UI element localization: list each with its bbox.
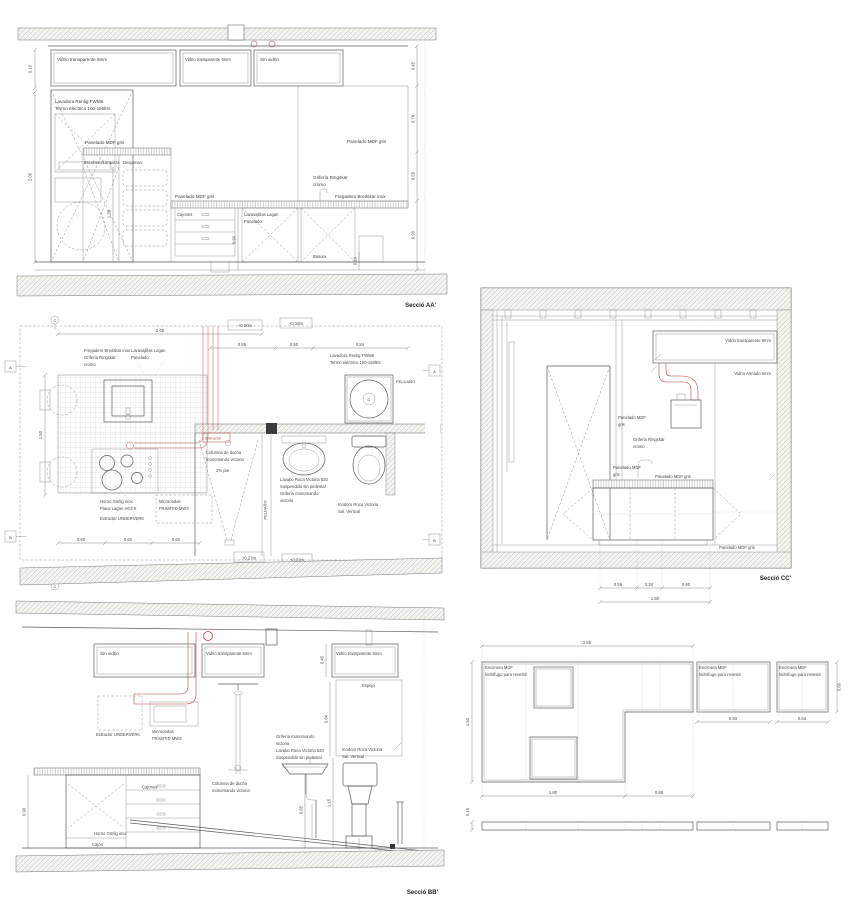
plan-bathroom: Lavabo Roca Victoria 520 Suspendido sin …: [280, 433, 395, 564]
plan-kitchen-counter: [40, 375, 207, 493]
cc-griferia-label-2: cromo: [633, 444, 645, 449]
cc-glass-panel: Vidrio transparente 6mm Vidrio Armado 6m…: [651, 331, 777, 480]
bb-lavabo-label-2: Suspendido sin pedestal: [276, 755, 322, 760]
plan-lavadora-label-1: Lavadora Renlig FWM6: [330, 353, 375, 358]
aa-base-cabinets: Cajones 0.90 Lavavajillas Lagan Panelado…: [175, 208, 383, 270]
plan-micro-label-2: FRAMTID MW3: [159, 506, 189, 511]
cc-dim-3: 0.60: [682, 582, 691, 587]
plan-marker-a-left: A: [9, 365, 12, 370]
aa-dim-right-4: 0.90: [411, 230, 416, 239]
wt-panel1-label-1: Encimera MDF: [485, 665, 513, 670]
plan-dim-mod3: 0.60: [172, 537, 181, 542]
aa-dim-left-top: 0.10: [28, 64, 33, 73]
plan-marker-b-left: B: [9, 535, 12, 540]
water-heater-outline: [57, 202, 105, 250]
bb-griferia-label-1: Grifería monomando: [276, 734, 315, 739]
plan-marker-a-right: A: [433, 369, 436, 374]
aa-panelado-upper-label: Panelado MDF gris: [85, 140, 125, 145]
bb-glass-right-label: Vidrio transparente 6mm: [336, 651, 382, 656]
plan-inodoro-label-2: Sal. Vertical: [338, 509, 360, 514]
aa-panelado-right-label: Panelado MDF gris: [347, 139, 387, 144]
aa-cajones-label: Cajones: [177, 212, 192, 217]
wt-dim-total: 2.65: [583, 640, 592, 645]
toilet-tank: [343, 763, 377, 786]
floor-plan-drawing: C C +0.00m +0.16m 2.65 0.85 0.50 0.84 Fr…: [0, 312, 455, 602]
wt-edge-strips: 0.10: [465, 807, 828, 832]
aa-glass-left-label: Vidrio transparente 6mm: [57, 57, 107, 62]
plan-drum-letter: C: [368, 397, 371, 402]
aa-despensa-label: Despensa: [123, 160, 143, 165]
plan-dim-seg3: 0.84: [356, 342, 365, 347]
bb-horno-label: Horno Görlig inox: [94, 831, 127, 836]
cc-left-wall-layers: [497, 310, 514, 552]
plan-interior-wall: [195, 423, 440, 434]
basin-profile: [282, 764, 328, 774]
bb-dim-lavabo: 0.85: [299, 805, 304, 814]
plan-level-16: +0.16m: [289, 321, 304, 326]
plan-dim-mod2: 0.60: [124, 537, 133, 542]
plan-lavabo-label-1: Lavabo Roca Victoria 520: [280, 477, 329, 482]
cc-panelado3-label: Panelado MDF gris: [655, 474, 691, 479]
plan-dim-mod1: 0.60: [77, 537, 86, 542]
plan-top-dimensions: 2.65 0.85 0.50 0.84: [56, 328, 410, 350]
aa-glass-right-label: Sin vidrio: [260, 57, 279, 62]
cc-dimensions: 0.56 0.34 0.60 1.50: [598, 540, 712, 604]
aa-dim-right-3: 0.65: [411, 171, 416, 180]
bb-floor: [16, 848, 444, 872]
hob-cutout: [530, 737, 577, 779]
plan-extractor-label: Extractor: [206, 436, 223, 441]
plan-lavavajillas-label-1: Lavavajillas Lagan: [131, 348, 166, 353]
cc-panelado2-label-1: Panelado MDF: [613, 465, 641, 470]
plan-marker-c-bottom: C: [54, 584, 57, 589]
plan-peldano-mid-label: PELDAÑO: [263, 500, 268, 519]
plan-ducha-label-3: 2% pte.: [216, 468, 230, 473]
cc-counter-cabinet: [493, 363, 777, 545]
aa-dim-drawers: 0.90: [232, 235, 237, 244]
shower-head-icon: [234, 691, 242, 695]
plan-fregadero-label-1: Fregadero Bredskär inox: [84, 348, 131, 353]
plan-level-27: +0.27m: [242, 556, 257, 561]
bb-drain-pipes: [130, 802, 434, 855]
wt-dim-strip: 0.10: [465, 807, 470, 816]
sink-cutout: [534, 667, 573, 708]
aa-tall-cabinet: Lavadora Renlig FWM6 Termo eléctrico 100…: [51, 90, 133, 262]
plan-dim-seg1: 0.85: [238, 342, 247, 347]
aa-glass-panels: Vidrio transparente 6mm Vidrio transpare…: [51, 50, 343, 86]
aa-upper-counter: Panelado MDF gris: [83, 140, 171, 155]
bb-washbasin: Grifería monomando victoria Lavabo Roca …: [276, 734, 328, 838]
cc-dim-1: 0.56: [614, 582, 623, 587]
bb-extraction-duct: [134, 632, 196, 704]
aa-left-dimensions: 0.10 2.05: [28, 48, 38, 264]
bb-glass-panels: Sin vidrio Vidrio transparente 6mm Vidri…: [94, 644, 398, 677]
wt-dim-p3: 0.64: [798, 716, 807, 721]
drawing-sheet: Vidrio transparente 6mm Vidrio transpare…: [0, 0, 850, 904]
aa-title: Secció AA': [405, 303, 436, 309]
plan-lavabo-label-2: Suspendido sin pedestal: [280, 484, 326, 489]
aa-dim-right-2: 0.76: [411, 114, 416, 123]
aa-storage-compartments: Escobero/Limpieza Despensa 1.39: [83, 155, 171, 262]
plan-lavabo-label-4: victoria: [280, 498, 294, 503]
bb-cajones-label: Cajones: [142, 785, 157, 790]
microwave-front: [150, 702, 198, 726]
duct-penetration-icon: [204, 632, 213, 641]
cc-panelado4-label: Panelado MDF gris: [719, 545, 755, 550]
plan-dim-seg2: 0.50: [290, 342, 299, 347]
cc-panelado1-label-1: Panelado MDF: [618, 415, 646, 420]
bb-mirror: Espejo 0.84: [324, 680, 403, 756]
plan-micro-label-1: Microondas: [159, 499, 181, 504]
plan-shower: PELDAÑO Columna de ducha monomando victo…: [195, 433, 271, 562]
plan-horno-label-2: Placa Lagan HGCK: [100, 506, 137, 511]
bb-toilet: Inodoro Roca Victoria Sal. Vertical 0.85…: [299, 747, 383, 848]
aa-escobero-label: Escobero/Limpieza: [84, 160, 120, 165]
bb-micro-label-1: Microondas: [152, 729, 174, 734]
bb-cajon-label: Cajón: [92, 842, 104, 847]
toilet-bowl: [348, 786, 372, 804]
aa-dim-left-main: 2.05: [28, 172, 33, 181]
seccio-bb-drawing: Sin vidrio Vidrio transparente 6mm Vidri…: [10, 598, 450, 900]
plan-lavabo-label-3: Grifería monomando: [280, 491, 319, 496]
bb-ceiling-structure: [16, 601, 444, 850]
extractor-unit-outline: [98, 696, 142, 730]
bb-glass-mid-label: Vidrio transparente 6mm: [206, 651, 252, 656]
plan-inodoro-label-1: Inodoro Roca Victoria: [338, 502, 379, 507]
cc-panelado1-label-2: gris: [618, 422, 625, 427]
wt-panel2-label-2: hidrófugo para revestir: [699, 672, 742, 677]
plan-street-band: [20, 558, 442, 585]
plan-level-0: +0.00m: [238, 323, 253, 328]
plan-dim-total: 2.65: [156, 328, 165, 333]
bb-appliances: Extractor UNDERVERK Microondas FRAMTID M…: [96, 696, 198, 741]
bb-dim-inodoro: 1.15: [327, 798, 332, 807]
aa-lavavajillas-label-1: Lavavajillas Lagan: [244, 212, 279, 217]
plan-lavadora-label-2: Termo eléctrico 100-150ltrs: [330, 360, 381, 365]
aa-floor: [17, 262, 447, 296]
aa-main-counter: Panelado MDF gris Fregadero Bredskär ino…: [171, 175, 408, 208]
aa-lavadora-label-2: Termo eléctrico 100-150ltrs: [55, 106, 111, 111]
bb-kitchen-cabinet: Horno Görlig inox Cajón Cajones 0.90: [22, 768, 201, 848]
wt-dimensions: 1.50 0.60 0.93 0.64 1.80 0.85: [465, 660, 842, 798]
bb-dim-counter: 0.90: [22, 807, 27, 816]
plan-fregadero-label-3: cromo: [84, 362, 96, 367]
aa-right-dimensions: 0.45 0.76 0.65 0.90: [411, 44, 420, 272]
plan-marker-c-top: C: [54, 318, 57, 323]
bb-title: Secció BB': [407, 890, 439, 896]
bb-dim-mirror: 0.84: [324, 714, 329, 723]
bb-lavabo-label-1: Lavabo Roca Victoria 520: [276, 748, 325, 753]
plan-washer-niche: C PELDAÑO: [345, 375, 415, 423]
seccio-aa-drawing: Vidrio transparente 6mm Vidrio transpare…: [15, 24, 450, 312]
wt-dim-right: 0.60: [837, 682, 842, 691]
aa-dim-small: 0.16: [353, 256, 358, 265]
wt-dim-notch: 0.85: [655, 790, 664, 795]
aa-panelado-mid-label: Panelado MDF gris: [175, 194, 215, 199]
cc-griferia-label-1: Grifería Ringskär: [633, 437, 665, 442]
cc-ceiling: [493, 310, 777, 325]
wt-dim-p2: 0.93: [729, 716, 738, 721]
washbasin-backsplash: [282, 436, 326, 443]
bb-ducha-label-2: monomando victoria: [212, 788, 250, 793]
wt-top-dimension: 2.65: [480, 640, 695, 662]
bb-dim-glass: 0.45: [320, 655, 325, 664]
aa-dim-inner-tall: 1.39: [107, 209, 112, 218]
aa-lavavajillas-label-2: Panelado: [244, 219, 262, 224]
plan-peldano-right-label: PELDAÑO: [396, 379, 415, 384]
seccio-cc-drawing: Vidrio transparente 6mm Vidrio Armado 6m…: [475, 282, 805, 612]
wt-panel1-label-2: hidrófugo para revestir: [485, 672, 528, 677]
aa-dim-right-1: 0.45: [411, 61, 416, 70]
plan-horno-label-3: Extractor UNDERVERK: [100, 516, 144, 521]
encimera-drawing: 2.65 Encimera MDF hidrófugo para revesti…: [460, 634, 850, 862]
wt-side-panels: Encimera MDF hidrófugo para revestir Enc…: [697, 662, 828, 712]
boiler-unit: [671, 400, 701, 428]
aa-glass-mid-label: Vidrio transparente 6mm: [185, 57, 231, 62]
aa-griferia-label-1: Grifería Ringskär: [313, 175, 348, 180]
bb-inodoro-label-2: Sal. Vertical: [342, 754, 364, 759]
toilet-tank-plan: [352, 436, 386, 447]
cc-wall-frame: [481, 288, 791, 568]
plan-level-markers: +0.00m +0.16m: [228, 318, 312, 330]
cc-panelado2-label-2: gris: [613, 472, 620, 477]
cc-dim-2: 0.34: [645, 582, 654, 587]
cc-armado-label: Vidrio Armado 6mm: [734, 371, 771, 376]
cc-title: Secció CC': [760, 576, 792, 582]
toilet-plan: [353, 446, 385, 484]
plan-horno-label-1: Horno Görlig inox: [100, 499, 133, 504]
aa-basura-label: Basura: [313, 254, 327, 259]
cc-glass-label: Vidrio transparente 6mm: [725, 338, 771, 343]
wt-panel3-label-1: Encimera MDF: [779, 665, 807, 670]
aa-griferia-label-2: cromo: [313, 182, 326, 187]
aa-ceiling-structure: [18, 25, 436, 276]
plan-marker-b-right: B: [433, 538, 436, 543]
plan-fregadero-label-2: Grifería Ringskär: [84, 355, 116, 360]
bb-griferia-label-2: victoria: [276, 741, 290, 746]
bb-inodoro-label-1: Inodoro Roca Victoria: [342, 747, 383, 752]
bb-ducha-label-1: Columna de ducha: [212, 781, 248, 786]
aa-fregadero-label: Fregadero Bredskär inox: [335, 194, 386, 199]
wt-main-panel: Encimera MDF hidrófugo para revestir: [482, 662, 693, 782]
wt-panel3-label-2: hidrófugo para revestir: [779, 672, 822, 677]
plan-lavavajillas-label-2: Panelado: [131, 355, 149, 360]
plan-ducha-label-2: monomando victoria: [206, 457, 244, 462]
bb-extractor-label: Extractor UNDERVERK: [96, 732, 140, 737]
bb-shower-column: Columna de ducha monomando victoria: [212, 684, 258, 793]
wt-dim-left: 1.50: [465, 717, 470, 726]
cc-tall-panel: [547, 320, 622, 540]
plan-ducha-label-1: Columna de ducha: [206, 450, 242, 455]
plan-dim-left: 1.50: [38, 430, 43, 439]
wt-dim-leg: 1.80: [549, 790, 558, 795]
cc-dim-total: 1.50: [651, 596, 660, 601]
aa-lavadora-label-1: Lavadora Renlig FWM6: [55, 99, 104, 104]
wt-panel2-label-1: Encimera MDF: [699, 665, 727, 670]
faucet-icon: [320, 189, 327, 201]
cc-extraction-duct: [659, 363, 701, 428]
bb-espejo-label: Espejo: [362, 683, 375, 688]
bb-micro-label-2: FRAMTID MW3: [152, 736, 182, 741]
bb-glass-left-label: Sin vidrio: [100, 651, 119, 656]
